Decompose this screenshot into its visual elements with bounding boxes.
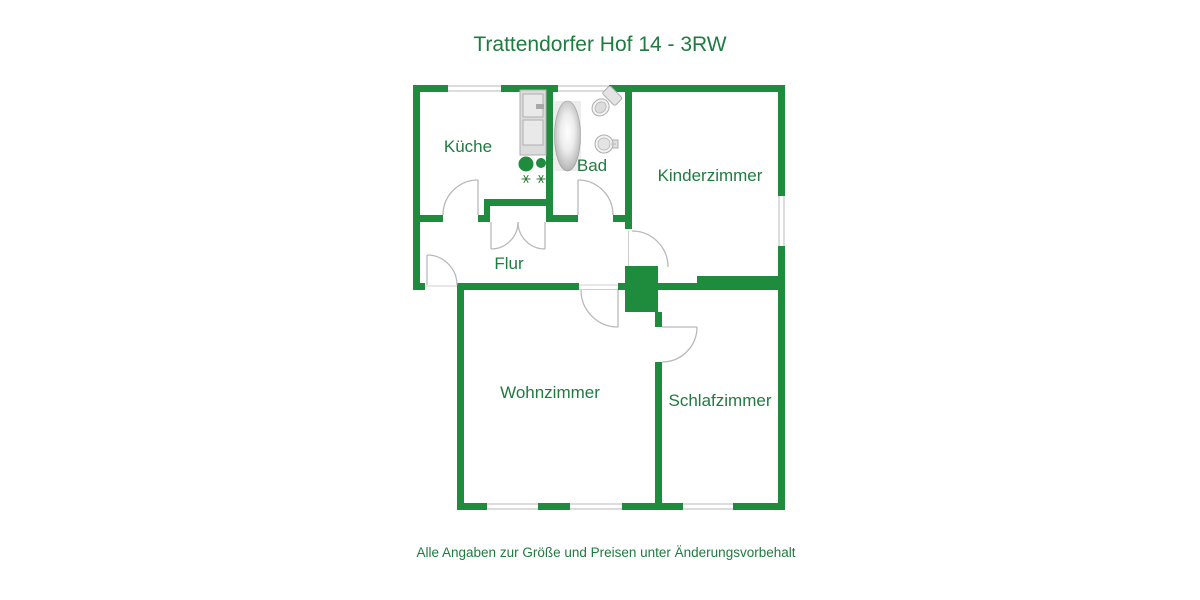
wall-flur-bottom-b	[457, 283, 579, 290]
bad-door	[578, 180, 613, 215]
wall-right	[778, 85, 785, 510]
room-labels: Küche Bad Kinderzimmer Flur Wohnzimmer S…	[444, 137, 772, 410]
wall-kinder-schlaf-thick	[697, 276, 778, 284]
burner-icon-left	[522, 175, 531, 183]
schlafzimmer-door	[662, 327, 697, 362]
bad-door-opening	[578, 215, 613, 222]
wall-bad-kinder-divider	[625, 92, 632, 229]
flur-double-door	[491, 222, 545, 249]
wohnzimmer-window-1	[487, 503, 538, 510]
wall-kinder-schlaf	[658, 283, 778, 290]
wall-wohnzimmer-west	[457, 283, 464, 510]
burner-icon-right	[537, 175, 546, 183]
kueche-window	[448, 85, 501, 92]
room-label-kueche: Küche	[444, 137, 492, 156]
room-label-kinderzimmer: Kinderzimmer	[658, 166, 763, 185]
wall-alcove-left	[484, 199, 490, 222]
room-label-bad: Bad	[577, 156, 607, 175]
schlafzimmer-window	[683, 503, 733, 510]
alcove-opening	[490, 206, 546, 222]
wall-wohn-schlaf-lower	[655, 362, 662, 510]
floorplan-canvas: Trattendorfer Hof 14 - 3RW	[0, 0, 1200, 600]
room-label-flur: Flur	[494, 254, 524, 273]
chimney-block	[625, 266, 658, 312]
stove-plate-large	[519, 157, 534, 172]
wall-alcove-top	[484, 199, 553, 206]
wall-wohn-schlaf-upper	[655, 312, 662, 327]
sink-basin-bottom	[523, 120, 543, 145]
plan-title: Trattendorfer Hof 14 - 3RW	[473, 33, 726, 56]
kitchen-unit	[519, 90, 547, 183]
kueche-door-opening	[443, 215, 478, 222]
door-openings	[443, 206, 613, 222]
floorplan-page: Trattendorfer Hof 14 - 3RW	[0, 0, 1200, 600]
entry-door	[425, 255, 457, 286]
wall-flur-bottom-a	[413, 283, 425, 290]
wall-left	[413, 85, 420, 290]
bad-window	[558, 85, 609, 92]
kinderzimmer-door	[629, 231, 669, 267]
faucet-icon	[536, 104, 544, 109]
windows	[448, 85, 785, 510]
stove-plate-small	[536, 158, 546, 168]
room-label-schlafzimmer: Schlafzimmer	[669, 391, 772, 410]
kinderzimmer-window	[778, 196, 785, 246]
disclaimer-text: Alle Angaben zur Größe und Preisen unter…	[417, 545, 796, 560]
wohnzimmer-door	[579, 285, 618, 327]
kueche-door	[443, 180, 478, 215]
wash-basin	[595, 135, 618, 153]
wohnzimmer-window-2	[570, 503, 622, 510]
room-label-wohnzimmer: Wohnzimmer	[500, 383, 600, 402]
